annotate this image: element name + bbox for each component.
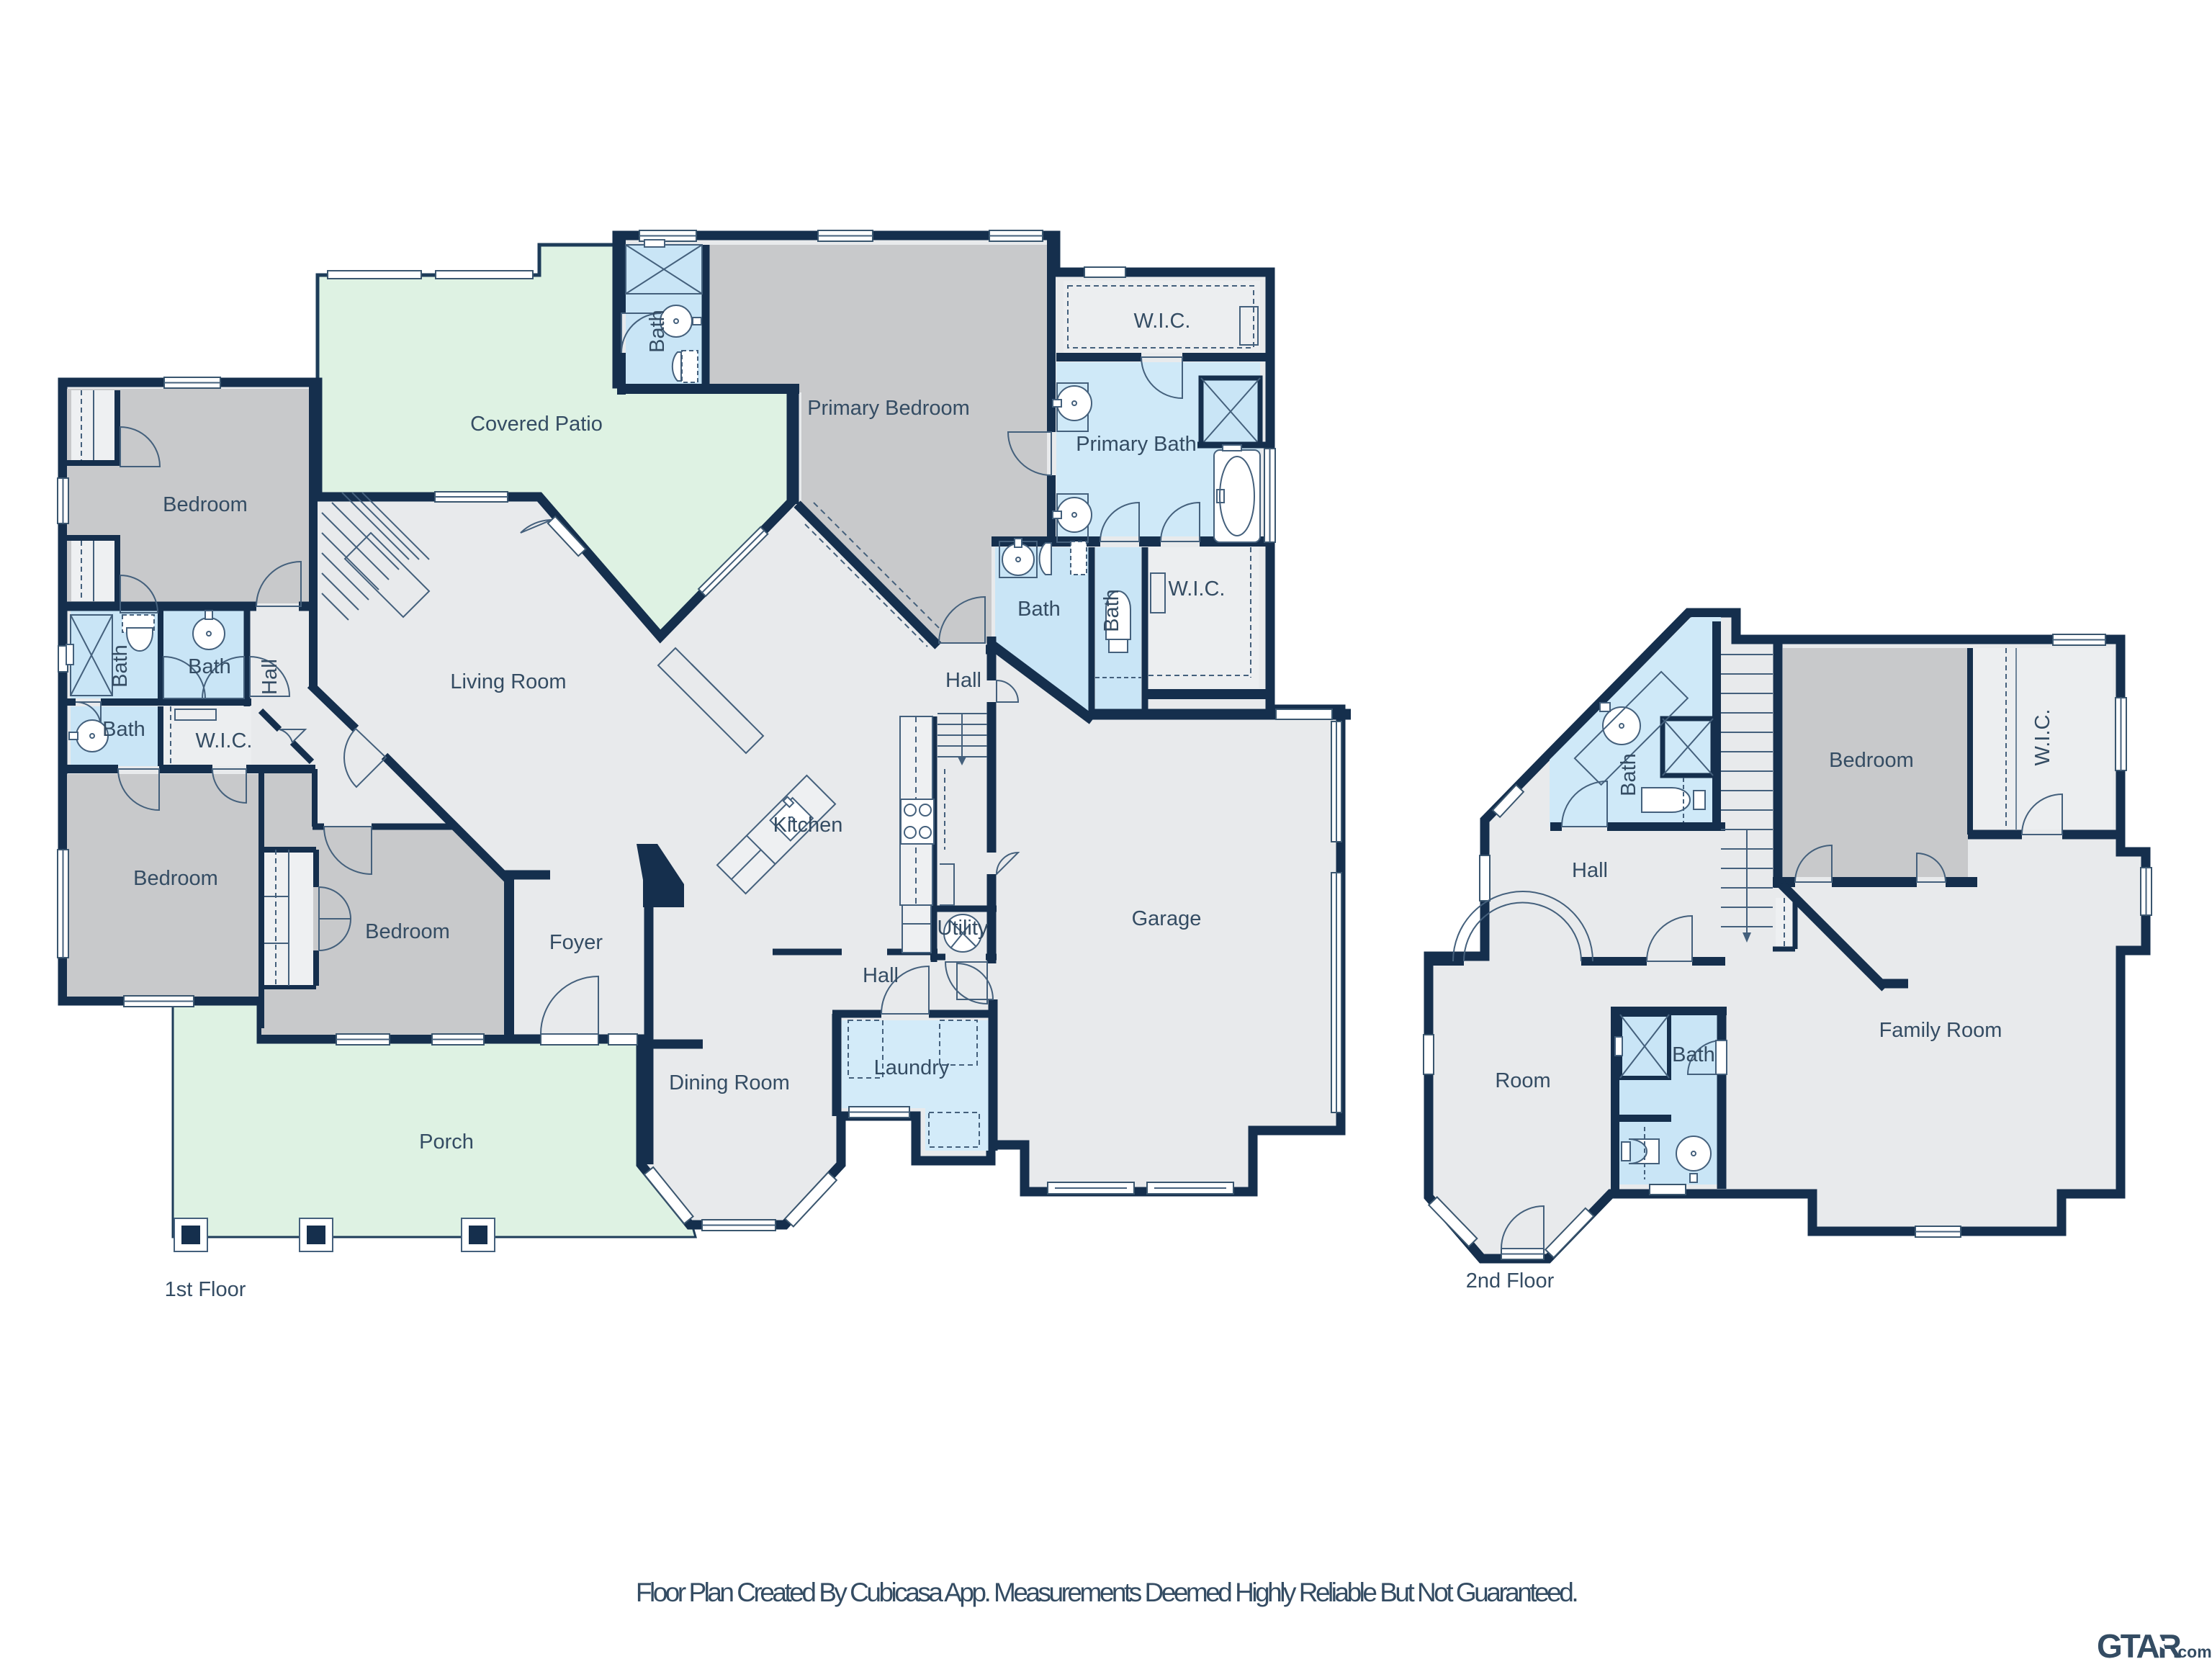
svg-text:Bath: Bath [1017, 598, 1061, 621]
svg-text:Utility: Utility [938, 917, 989, 940]
svg-text:Bath: Bath [188, 655, 231, 678]
svg-text:Garage: Garage [1132, 907, 1202, 930]
svg-text:Porch: Porch [419, 1130, 474, 1154]
svg-text:Family Room: Family Room [1879, 1019, 2002, 1042]
svg-text:Floor Plan Created By Cubicasa: Floor Plan Created By Cubicasa App. Meas… [636, 1578, 1576, 1607]
svg-text:Bath: Bath [109, 644, 132, 688]
svg-text:W.I.C.: W.I.C. [1169, 577, 1226, 601]
svg-text:Primary Bath: Primary Bath [1076, 433, 1197, 456]
svg-text:W.I.C.: W.I.C. [196, 729, 253, 752]
svg-text:Hall: Hall [258, 659, 282, 695]
svg-text:2nd Floor: 2nd Floor [1466, 1269, 1555, 1292]
svg-text:Room: Room [1495, 1069, 1550, 1092]
svg-text:Bath: Bath [1617, 753, 1640, 796]
svg-text:Bath: Bath [102, 718, 145, 741]
svg-text:Bedroom: Bedroom [133, 867, 218, 890]
svg-text:1st Floor: 1st Floor [165, 1278, 246, 1301]
svg-text:Bedroom: Bedroom [163, 493, 248, 516]
svg-text:Kitchen: Kitchen [773, 814, 843, 837]
svg-text:Dining Room: Dining Room [669, 1071, 790, 1094]
svg-text:Primary Bedroom: Primary Bedroom [807, 397, 970, 420]
svg-text:.com: .com [2173, 1642, 2212, 1659]
svg-text:GTAR: GTAR [2097, 1627, 2182, 1659]
svg-text:Foyer: Foyer [549, 931, 603, 954]
svg-text:Living Room: Living Room [450, 670, 566, 693]
svg-text:Bedroom: Bedroom [1829, 749, 1914, 772]
svg-text:Laundry: Laundry [874, 1056, 950, 1079]
svg-text:Hall: Hall [1572, 859, 1608, 882]
svg-text:Bedroom: Bedroom [365, 920, 450, 943]
svg-text:Bath: Bath [1672, 1043, 1715, 1066]
svg-text:Hall: Hall [945, 669, 981, 692]
svg-text:W.I.C.: W.I.C. [1134, 310, 1191, 333]
svg-text:Bath: Bath [1100, 589, 1123, 632]
svg-text:Hall: Hall [863, 964, 899, 987]
svg-text:Bath: Bath [646, 310, 669, 353]
svg-text:Covered Patio: Covered Patio [470, 413, 603, 436]
svg-text:W.I.C.: W.I.C. [2031, 709, 2054, 766]
